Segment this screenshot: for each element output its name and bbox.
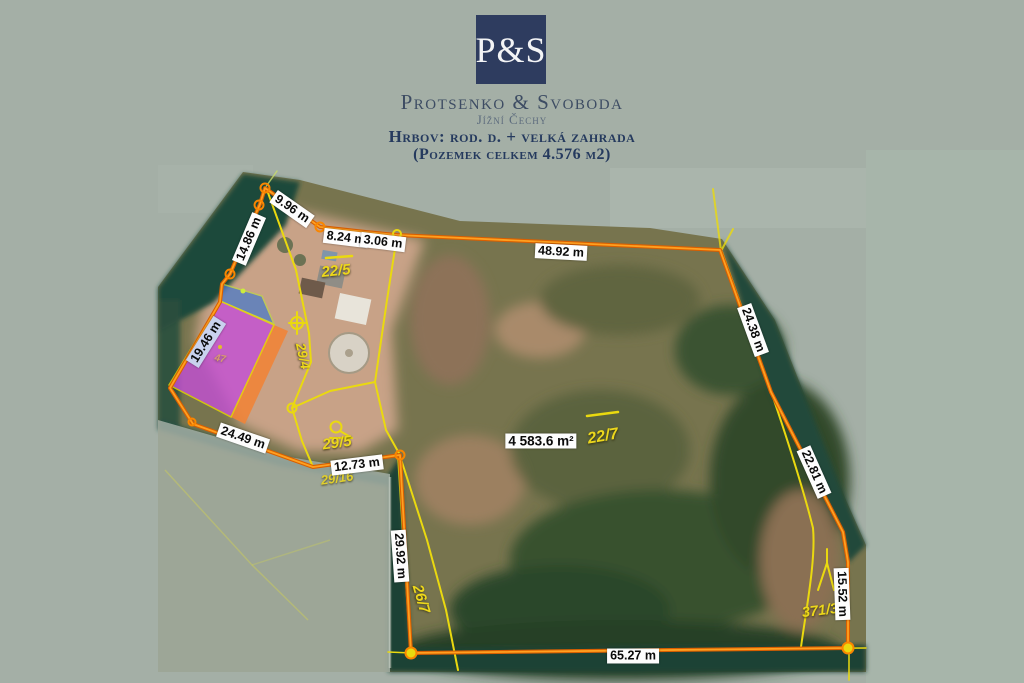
total-area-label: 4 583.6 m²	[505, 434, 576, 449]
aerial-photo-region	[158, 172, 866, 680]
logo-text: P&S	[475, 29, 546, 71]
listing-subtitle: (Pozemek celkem 4.576 m2)	[0, 146, 1024, 164]
measurement-label-right-c: 15.52 m	[834, 568, 851, 620]
parcel-label-47: 47	[214, 353, 227, 366]
flyer-canvas: P&S Protsenko & Svoboda Jížní Čechy Hrbo…	[0, 0, 1024, 683]
measurement-label-top-d: 48.92 m	[535, 243, 588, 261]
parcel-label-22-5: 22/5	[321, 261, 352, 281]
region-name: Jížní Čechy	[0, 112, 1024, 128]
company-logo: P&S	[476, 15, 546, 84]
listing-title: Hrbov: rod. d. + velká zahrada	[0, 127, 1024, 147]
measurement-label-bottom-a: 65.27 m	[607, 649, 659, 664]
